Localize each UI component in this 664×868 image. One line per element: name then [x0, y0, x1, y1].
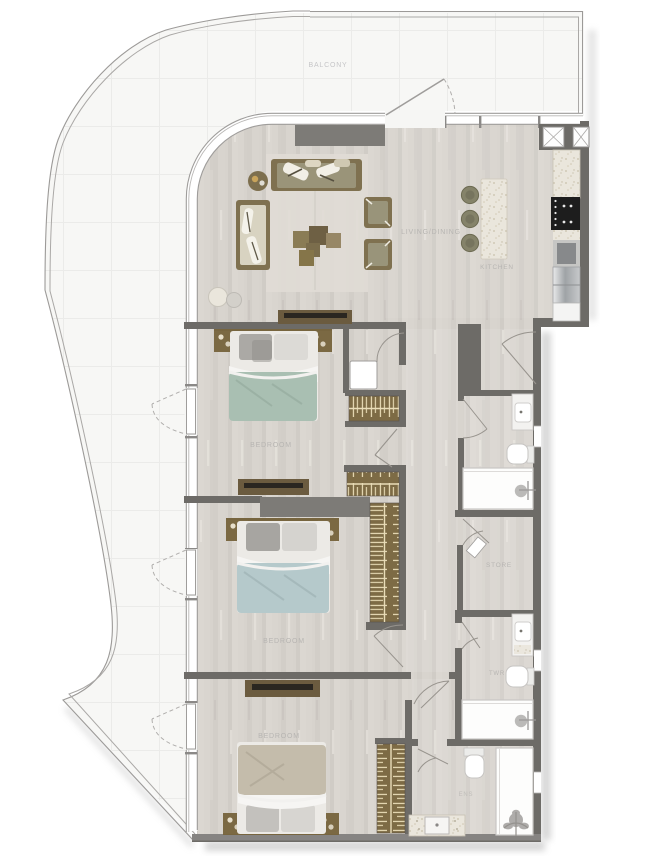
svg-text:LIVING/DINING: LIVING/DINING	[401, 229, 461, 236]
svg-text:KITCHEN: KITCHEN	[480, 264, 514, 271]
svg-text:BEDROOM: BEDROOM	[258, 733, 300, 740]
svg-text:ENS: ENS	[459, 792, 474, 798]
svg-text:BEDROOM: BEDROOM	[263, 638, 305, 645]
svg-text:BALCONY: BALCONY	[308, 62, 347, 69]
svg-text:BEDROOM: BEDROOM	[250, 442, 292, 449]
svg-text:STORE: STORE	[486, 562, 512, 569]
svg-text:TWR: TWR	[489, 671, 505, 677]
